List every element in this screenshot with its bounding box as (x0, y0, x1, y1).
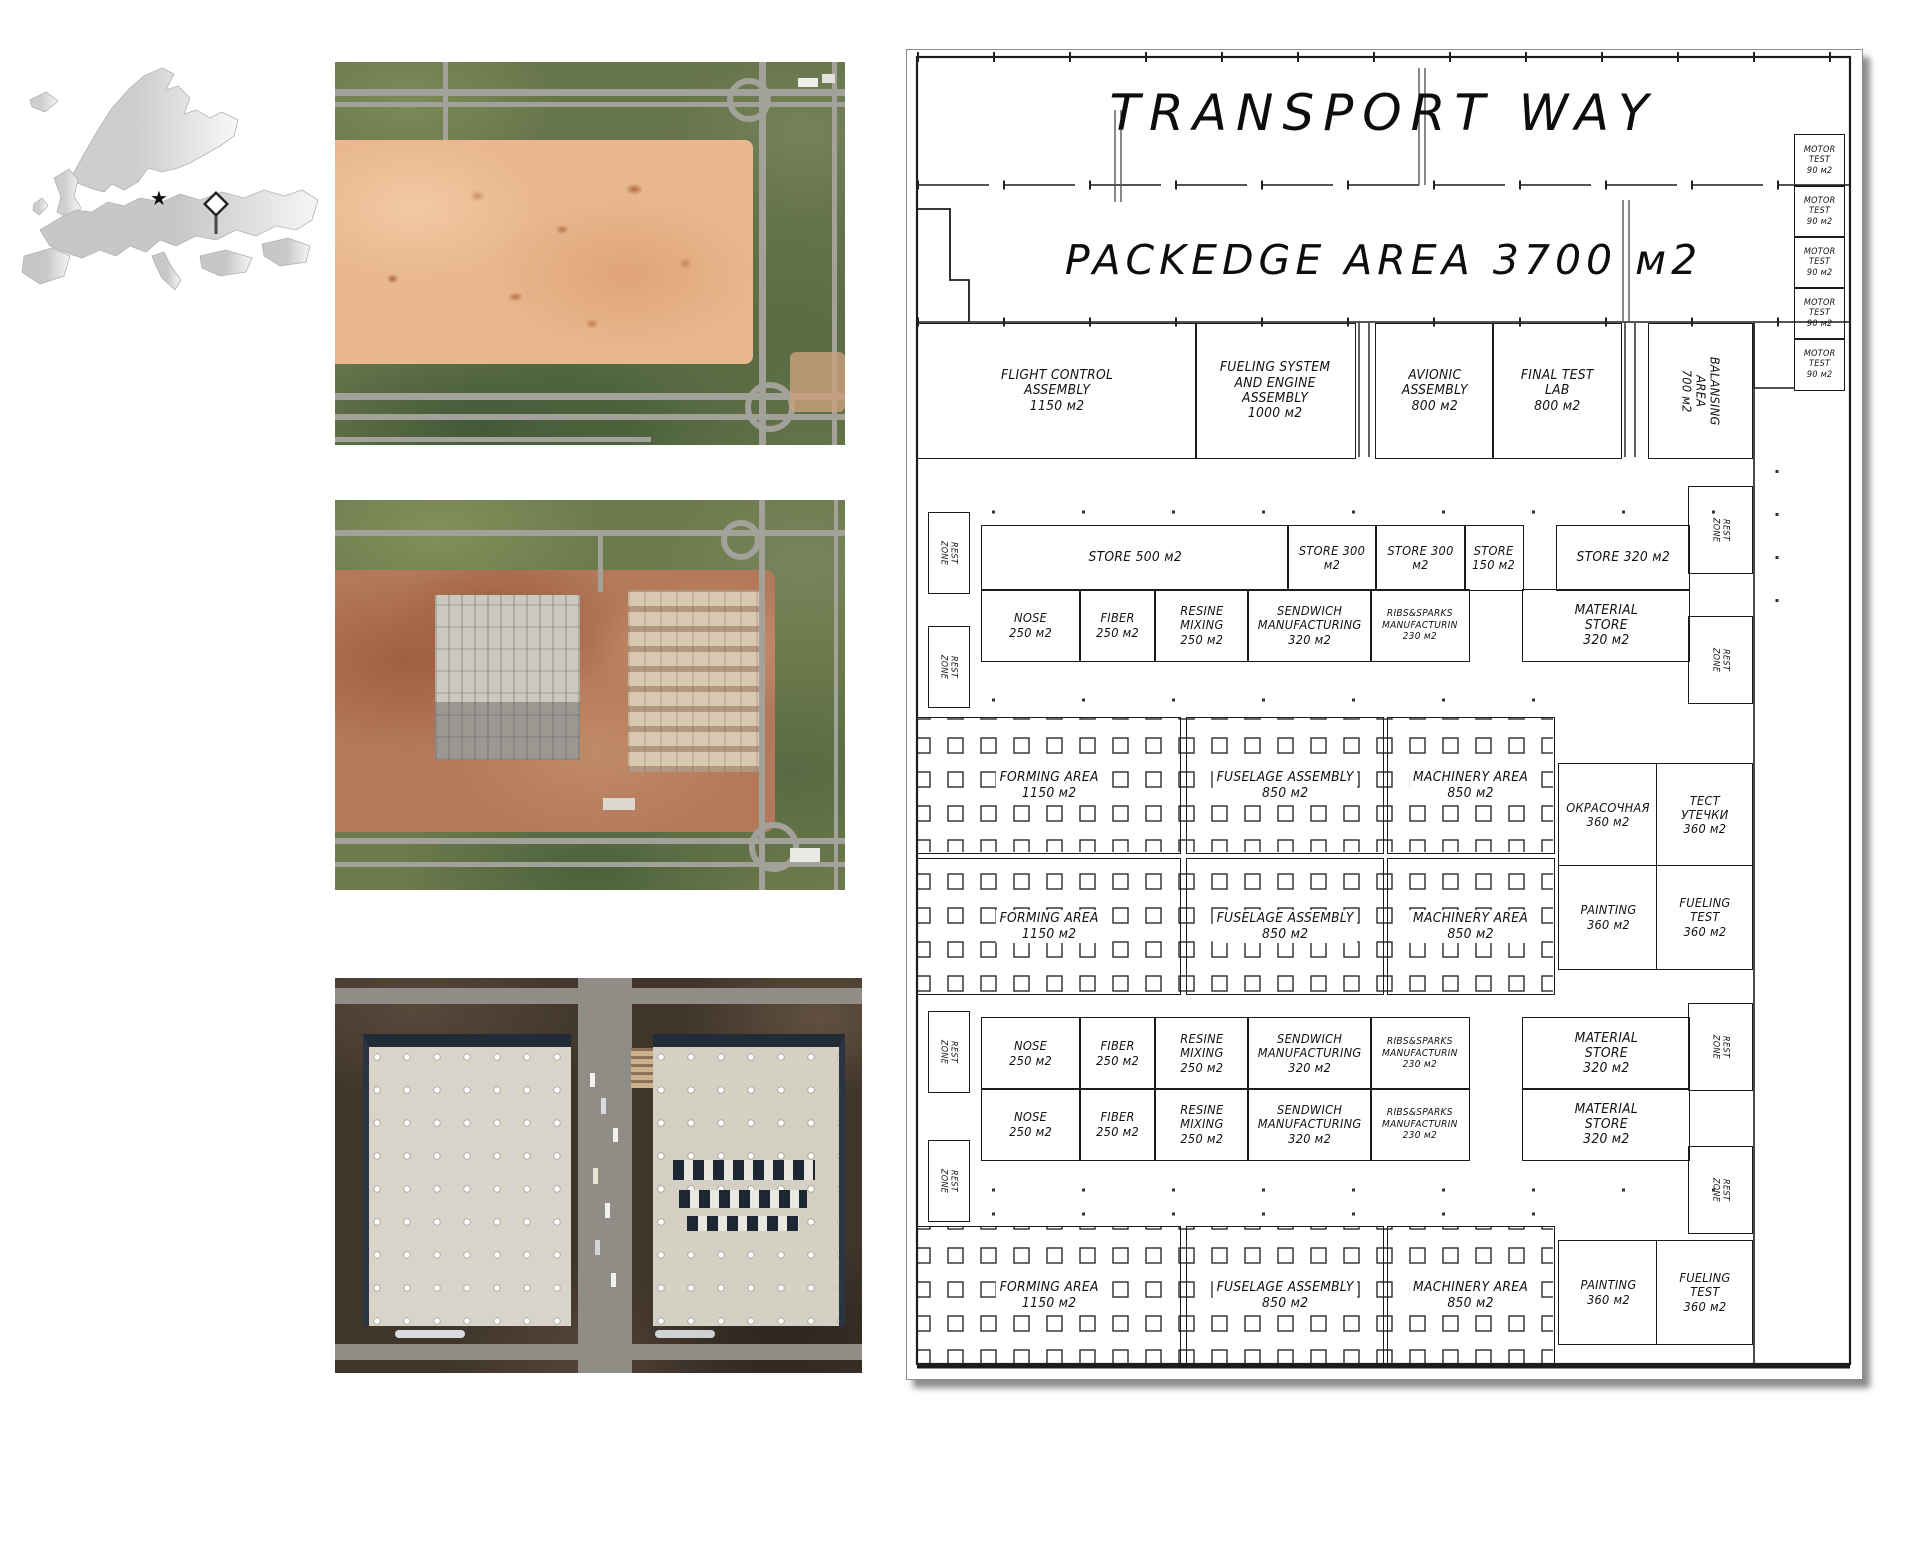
room-label: REST ZONE (939, 1169, 959, 1193)
truck (611, 1273, 616, 1287)
room-material-store-1: MATERIAL STORE 320 м2 (1522, 589, 1690, 662)
room-label: MOTOR TEST 90 м2 (1804, 298, 1836, 328)
room-forming-area-1: FORMING AREA 1150 м2 (917, 717, 1181, 854)
room-rest-zone-left-2: REST ZONE (928, 626, 970, 708)
roundabout (745, 382, 795, 432)
room-fueling-system-assembly: FUELING SYSTEM AND ENGINE ASSEMBLY 1000 … (1195, 323, 1356, 459)
road (335, 530, 845, 536)
room-ribs-sparks-1: RIBS&SPARKS MANUFACTURIN 230 м2 (1370, 589, 1470, 662)
room-sendwich-manufacturing-3: SENDWICH MANUFACTURING 320 м2 (1247, 1088, 1372, 1161)
room-store-300-a: STORE 300 м2 (1287, 525, 1377, 591)
landmass (22, 68, 318, 290)
truck (595, 1240, 600, 1255)
building (790, 848, 820, 862)
room-store-500: STORE 500 м2 (981, 525, 1289, 591)
room-nose-1: NOSE 250 м2 (981, 589, 1081, 662)
room-nose-2: NOSE 250 м2 (981, 1017, 1081, 1090)
room-fiber-2: FIBER 250 м2 (1079, 1017, 1156, 1090)
building (798, 78, 818, 87)
room-label: STORE 320 м2 (1576, 550, 1670, 565)
room-label: SENDWICH MANUFACTURING 320 м2 (1258, 1032, 1362, 1074)
room-label: FIBER 250 м2 (1096, 1110, 1139, 1138)
room-label: FORMING AREA 1150 м2 (996, 1279, 1103, 1312)
room-forming-area-2: FORMING AREA 1150 м2 (917, 858, 1181, 995)
soil-patch (790, 352, 845, 412)
truck (593, 1168, 598, 1184)
room-label: STORE 500 м2 (1088, 550, 1182, 565)
room-rest-zone-left-4: REST ZONE (928, 1140, 970, 1222)
room-fuselage-assembly-3: FUSELAGE ASSEMBLY 850 м2 (1186, 1226, 1384, 1365)
room-label: BALANSING AREA 700 м2 (1679, 357, 1721, 426)
room-label: AVIONIC ASSEMBLY 800 м2 (1401, 368, 1467, 414)
room-label: MATERIAL STORE 320 м2 (1574, 603, 1637, 649)
room-label: ТЕСТ УТЕЧКИ 360 м2 (1681, 794, 1728, 836)
room-label: STORE 300 м2 (1290, 544, 1374, 572)
warehouse-roof-left (363, 1034, 571, 1326)
room-label: FIBER 250 м2 (1096, 611, 1139, 639)
packedge-area-title: PACKEDGE AREA 3700 м2 (917, 236, 1850, 284)
room-resine-mixing-1: RESINE MIXING 250 м2 (1154, 589, 1249, 662)
wall (1754, 323, 1794, 388)
room-motor-test-2: MOTOR TEST 90 м2 (1794, 185, 1845, 238)
room-motor-test-5: MOTOR TEST 90 м2 (1794, 338, 1845, 391)
room-label: MOTOR TEST 90 м2 (1804, 349, 1836, 379)
roundabout (749, 822, 799, 872)
room-fiber-1: FIBER 250 м2 (1079, 589, 1156, 662)
foundation-pad-right (628, 590, 760, 772)
room-avionic-assembly: AVIONIC ASSEMBLY 800 м2 (1375, 323, 1494, 459)
room-label: REST ZONE (939, 541, 959, 565)
room-label: REST ZONE (1710, 1035, 1730, 1059)
truck (590, 1073, 595, 1087)
room-painting-2: PAINTING 360 м2 (1558, 1240, 1658, 1345)
room-rest-zone-right-4: REST ZONE (1688, 1146, 1753, 1234)
room-label: SENDWICH MANUFACTURING 320 м2 (1258, 1103, 1362, 1145)
road (335, 1344, 862, 1360)
room-rest-zone-right-3: REST ZONE (1688, 1003, 1753, 1091)
room-label: MACHINERY AREA 850 м2 (1410, 910, 1533, 943)
room-label: STORE 150 м2 (1473, 544, 1516, 572)
room-label: FUSELAGE ASSEMBLY 850 м2 (1213, 910, 1358, 943)
room-label: MACHINERY AREA 850 м2 (1410, 769, 1533, 802)
room-motor-test-1: MOTOR TEST 90 м2 (1794, 134, 1845, 187)
room-label: FORMING AREA 1150 м2 (996, 910, 1103, 943)
room-rest-zone-left-3: REST ZONE (928, 1011, 970, 1093)
road (598, 536, 603, 592)
room-machinery-area-2: MACHINERY AREA 850 м2 (1387, 858, 1555, 995)
room-label: MOTOR TEST 90 м2 (1804, 247, 1836, 277)
room-rest-zone-left-1: REST ZONE (928, 512, 970, 594)
room-motor-test-3: MOTOR TEST 90 м2 (1794, 236, 1845, 289)
room-label: FUSELAGE ASSEMBLY 850 м2 (1213, 1279, 1358, 1312)
road (335, 437, 651, 442)
room-label: MOTOR TEST 90 м2 (1804, 145, 1836, 175)
aerial-photo-construction (335, 500, 845, 890)
room-fiber-3: FIBER 250 м2 (1079, 1088, 1156, 1161)
room-resine-mixing-3: RESINE MIXING 250 м2 (1154, 1088, 1249, 1161)
roof-vent-stripes (679, 1190, 807, 1208)
room-label: ОКРАСОЧНАЯ 360 м2 (1566, 801, 1650, 829)
room-label: FUSELAGE ASSEMBLY 850 м2 (1213, 769, 1358, 802)
room-label: MOTOR TEST 90 м2 (1804, 196, 1836, 226)
star-marker-icon: ★ (150, 186, 168, 210)
aerial-photo-finished-buildings (335, 978, 862, 1373)
room-label: SENDWICH MANUFACTURING 320 м2 (1258, 604, 1362, 646)
warehouse-roof-right (653, 1034, 845, 1326)
room-label: FINAL TEST LAB 800 м2 (1521, 368, 1594, 414)
room-label: RESINE MIXING 250 м2 (1180, 1103, 1223, 1145)
materials-stack (631, 1048, 653, 1088)
room-label: FUELING SYSTEM AND ENGINE ASSEMBLY 1000 … (1220, 360, 1330, 421)
room-flight-control-assembly: FLIGHT CONTROL ASSEMBLY 1150 м2 (917, 323, 1197, 459)
page-canvas: ★ (0, 0, 1920, 1548)
street-title: TRANSPORT WAY (917, 84, 1850, 142)
room-label: MATERIAL STORE 320 м2 (1574, 1102, 1637, 1148)
room-test-utechki: ТЕСТ УТЕЧКИ 360 м2 (1656, 763, 1753, 867)
cleared-plot (335, 140, 753, 364)
snow-patch (395, 1330, 465, 1338)
room-label: RIBS&SPARKS MANUFACTURIN 230 м2 (1382, 608, 1458, 644)
room-material-store-2: MATERIAL STORE 320 м2 (1522, 1017, 1690, 1090)
room-store-320: STORE 320 м2 (1556, 525, 1690, 591)
room-nose-3: NOSE 250 м2 (981, 1088, 1081, 1161)
room-label: REST ZONE (1710, 648, 1730, 672)
snow-patch (655, 1330, 715, 1338)
room-label: FUELING TEST 360 м2 (1679, 896, 1730, 938)
room-balansing-area: BALANSING AREA 700 м2 (1648, 323, 1753, 459)
room-label: RIBS&SPARKS MANUFACTURIN 230 м2 (1382, 1107, 1458, 1143)
room-okrasochnaya: ОКРАСОЧНАЯ 360 м2 (1558, 763, 1658, 867)
truck (613, 1128, 618, 1142)
roundabout (721, 520, 761, 560)
room-fuselage-assembly-1: FUSELAGE ASSEMBLY 850 м2 (1186, 717, 1384, 854)
room-label: RIBS&SPARKS MANUFACTURIN 230 м2 (1382, 1036, 1458, 1072)
room-label: MACHINERY AREA 850 м2 (1410, 1279, 1533, 1312)
room-label: RESINE MIXING 250 м2 (1180, 604, 1223, 646)
room-label: REST ZONE (939, 1040, 959, 1064)
aerial-photo-cleared-site (335, 62, 845, 445)
room-label: FORMING AREA 1150 м2 (996, 769, 1103, 802)
roof-vent-stripes (673, 1160, 815, 1180)
room-machinery-area-1: MACHINERY AREA 850 м2 (1387, 717, 1555, 854)
room-resine-mixing-2: RESINE MIXING 250 м2 (1154, 1017, 1249, 1090)
room-sendwich-manufacturing-1: SENDWICH MANUFACTURING 320 м2 (1247, 589, 1372, 662)
floor-plan-panel: TRANSPORT WAY PACKEDGE AREA 3700 м2 FLIG… (906, 49, 1863, 1380)
room-ribs-sparks-2: RIBS&SPARKS MANUFACTURIN 230 м2 (1370, 1017, 1470, 1090)
room-forming-area-3: FORMING AREA 1150 м2 (917, 1226, 1181, 1365)
room-label: MATERIAL STORE 320 м2 (1574, 1031, 1637, 1077)
truck (605, 1203, 610, 1218)
building (822, 74, 835, 83)
room-sendwich-manufacturing-2: SENDWICH MANUFACTURING 320 м2 (1247, 1017, 1372, 1090)
room-label: STORE 300 м2 (1378, 544, 1463, 572)
room-fuselage-assembly-2: FUSELAGE ASSEMBLY 850 м2 (1186, 858, 1384, 995)
room-store-150: STORE 150 м2 (1464, 525, 1524, 591)
truck (601, 1098, 606, 1114)
road (443, 62, 448, 140)
room-final-test-lab: FINAL TEST LAB 800 м2 (1492, 323, 1622, 459)
room-label: REST ZONE (1710, 1178, 1730, 1202)
room-label: PAINTING 360 м2 (1580, 1278, 1636, 1306)
room-rest-zone-right-1: REST ZONE (1688, 486, 1753, 574)
room-label: FUELING TEST 360 м2 (1679, 1271, 1730, 1313)
foundation-pad-left (435, 595, 580, 760)
room-fueling-test-2: FUELING TEST 360 м2 (1656, 1240, 1753, 1345)
room-label: FLIGHT CONTROL ASSEMBLY 1150 м2 (1001, 368, 1113, 414)
room-label: REST ZONE (1710, 518, 1730, 542)
room-material-store-3: MATERIAL STORE 320 м2 (1522, 1088, 1690, 1161)
room-motor-test-4: MOTOR TEST 90 м2 (1794, 287, 1845, 340)
road (578, 978, 632, 1373)
room-label: RESINE MIXING 250 м2 (1180, 1032, 1223, 1074)
room-label: FIBER 250 м2 (1096, 1039, 1139, 1067)
room-label: NOSE 250 м2 (1010, 611, 1053, 639)
room-rest-zone-right-2: REST ZONE (1688, 616, 1753, 704)
room-painting-1: PAINTING 360 м2 (1558, 865, 1658, 970)
roof-vent-stripes (687, 1216, 799, 1231)
room-label: REST ZONE (939, 655, 959, 679)
room-label: NOSE 250 м2 (1010, 1039, 1053, 1067)
roundabout (727, 78, 771, 122)
room-label: NOSE 250 м2 (1010, 1110, 1053, 1138)
room-ribs-sparks-3: RIBS&SPARKS MANUFACTURIN 230 м2 (1370, 1088, 1470, 1161)
room-machinery-area-3: MACHINERY AREA 850 м2 (1387, 1226, 1555, 1365)
room-label: PAINTING 360 м2 (1580, 903, 1636, 931)
room-fueling-test-1: FUELING TEST 360 м2 (1656, 865, 1753, 970)
room-store-300-b: STORE 300 м2 (1375, 525, 1466, 591)
building (603, 798, 635, 810)
europe-locator-map: ★ (10, 58, 332, 306)
road (834, 500, 838, 890)
